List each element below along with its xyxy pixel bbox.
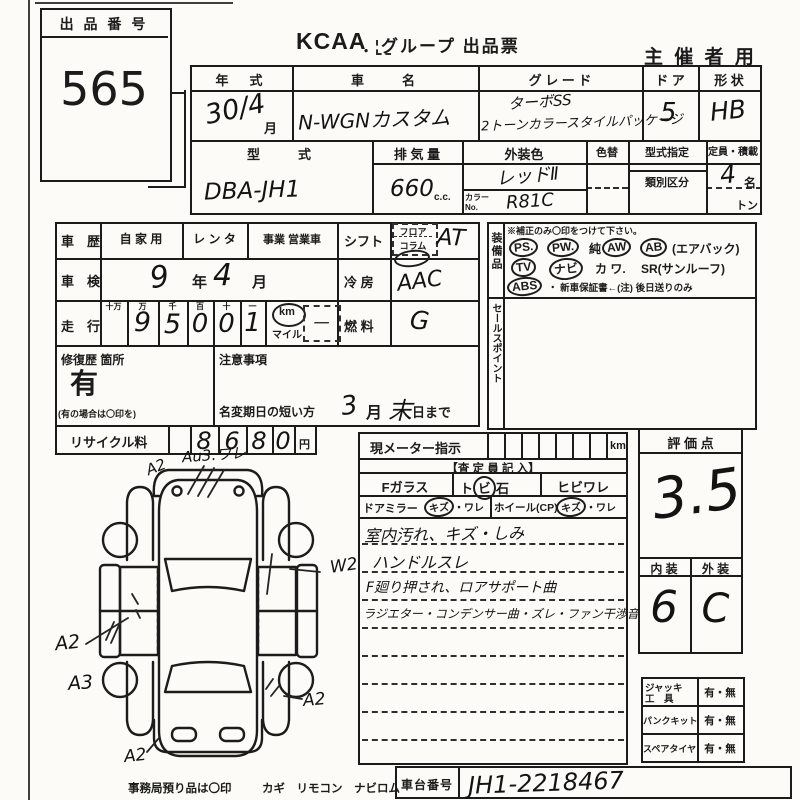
line xyxy=(521,434,523,458)
equipment-abs: ABS xyxy=(507,277,542,296)
headlight-left xyxy=(173,487,182,496)
circled-mark: PW. xyxy=(546,237,580,259)
ac-label: 冷 房 xyxy=(344,272,374,291)
color-no-value: R81C xyxy=(505,189,554,213)
color-no-label: カラーNo. xyxy=(465,193,495,212)
inspector-section-title: 【査 定 員 記 入】 xyxy=(358,460,628,476)
stone-chip-text: ト xyxy=(460,481,473,496)
rename-month-value: 3 xyxy=(339,390,360,422)
sales-point-label: セールスポイント xyxy=(488,303,503,425)
repair-note: (有の場合は〇印を) xyxy=(58,407,136,420)
chassis-number-value: JH1-2218467 xyxy=(468,766,625,799)
fender-front-right xyxy=(263,487,289,560)
damage-mark-front-top: Au3.ワレ xyxy=(181,442,246,467)
windshield xyxy=(165,559,251,591)
circled-mark: TV xyxy=(510,257,537,278)
equipment-ps: PS. xyxy=(509,238,538,257)
repair-value: 有 xyxy=(70,362,98,402)
scan-artifact xyxy=(170,92,186,94)
line xyxy=(452,472,454,495)
damage-mark-left-side: A2 xyxy=(54,631,81,656)
shape-value: HB xyxy=(709,94,748,127)
wheel-damage: キズ・ワレ xyxy=(556,497,616,517)
displacement-unit: c.c. xyxy=(434,192,451,203)
inspection-label: 車 検 xyxy=(61,271,100,290)
line xyxy=(641,761,745,763)
year-value: 30/4 xyxy=(202,88,268,131)
taillight-left xyxy=(172,728,196,741)
line xyxy=(190,140,762,142)
circled-mark: PS. xyxy=(508,237,539,258)
line xyxy=(641,677,745,679)
interior-label: 内 装 xyxy=(638,560,690,577)
line xyxy=(504,434,506,458)
line xyxy=(478,222,480,425)
line xyxy=(589,434,591,458)
fuel-value: G xyxy=(409,305,431,336)
dashed-line xyxy=(394,236,432,237)
wheel-crack-text: ・ワレ xyxy=(586,503,616,514)
lot-number-label: 出 品 番 号 xyxy=(40,14,168,34)
mile-unit: マイル xyxy=(272,326,302,341)
spare-tire-label: スペアタイヤ xyxy=(643,742,696,755)
circled-mark: ABS xyxy=(506,275,543,297)
rename-deadline-label: 名変期日の短い方 xyxy=(219,403,315,420)
jack-tools-label2: 工 具 xyxy=(645,691,674,705)
capacity-unit: 名 xyxy=(744,174,756,191)
line xyxy=(755,222,757,430)
line xyxy=(458,766,460,799)
load-unit: トン xyxy=(736,197,758,213)
mirror-damage: キズ・ワレ xyxy=(424,497,484,517)
mileage-label: 走 行 xyxy=(61,316,100,335)
type-designation-label: 型式指定 xyxy=(628,144,706,160)
shift-value: AT xyxy=(436,224,465,251)
exterior-color-label: 外装色 xyxy=(462,144,586,163)
puncture-kit-label: パンクキット xyxy=(643,714,697,727)
equipment-note: ※補正のみ〇印をつけて下さい。 xyxy=(507,224,642,237)
mirror-crack-text: ・ワレ xyxy=(454,503,484,514)
wheel-front-right xyxy=(279,523,313,557)
rear-window xyxy=(165,662,251,692)
inspection-year-unit: 年 xyxy=(192,271,207,292)
mileage-digit: 9 xyxy=(127,307,158,338)
color-change-label: 色替 xyxy=(586,144,628,160)
mileage-digit: 5 xyxy=(158,309,187,340)
line xyxy=(55,345,480,347)
career-private: 自 家 用 xyxy=(100,230,182,247)
car-name-label: 車 名 xyxy=(292,70,478,89)
line xyxy=(265,300,267,345)
meter-unit: km xyxy=(610,440,626,452)
line xyxy=(626,432,628,765)
meter-label: 現メーター指示 xyxy=(370,438,461,457)
line xyxy=(395,797,792,799)
auction-sheet: 出 品 番 号 565 KCAA ．グループ 出品票 主 催 者 用 年 式 車… xyxy=(0,0,800,800)
line xyxy=(372,163,762,165)
caution-label: 注意事項 xyxy=(219,351,267,368)
fender-rear-left xyxy=(127,662,153,735)
career-rental: レ ン タ xyxy=(182,230,247,247)
front-glass-label: Fガラス xyxy=(358,477,452,496)
rename-month-unit: 月 xyxy=(366,399,382,423)
inspector-note: F廻り押され、ロアサポート曲 xyxy=(366,577,556,597)
evaluation-score: 3.5 xyxy=(648,456,745,533)
equipment-aw: AW xyxy=(602,238,631,257)
equipment-pw: PW. xyxy=(547,238,579,257)
circled-mark: AW xyxy=(601,237,632,258)
displacement-value: 660 xyxy=(390,176,434,202)
equipment-label: 装備品 xyxy=(488,232,504,292)
mileage-digit: 0 xyxy=(187,309,213,339)
equipment-jun: 純 xyxy=(589,240,601,257)
equipment-navi: ナビ xyxy=(549,258,583,280)
dashed-line xyxy=(362,739,624,741)
line xyxy=(358,432,628,434)
grade-line1: ターボSS xyxy=(507,89,572,114)
line xyxy=(760,65,762,215)
line xyxy=(190,213,762,215)
line xyxy=(606,434,608,458)
circled-mark: キズ xyxy=(555,496,587,519)
year-label: 年 式 xyxy=(190,70,292,89)
scan-edge-line xyxy=(28,0,30,800)
damage-mark-right-side: W2 xyxy=(329,554,359,578)
equipment-ab: AB xyxy=(640,238,667,257)
damage-mark-left-lower: A3 xyxy=(67,671,94,695)
scan-artifact xyxy=(184,90,186,188)
dashed-line xyxy=(362,627,624,629)
line xyxy=(490,495,492,517)
line xyxy=(572,434,574,458)
inspection-month-unit: 月 xyxy=(252,271,267,292)
wheel-rear-left xyxy=(103,663,137,697)
line xyxy=(638,452,743,454)
mileage-digit: 1 xyxy=(240,308,265,338)
crack-label: ヒビワレ xyxy=(540,477,626,496)
dashed-line xyxy=(362,599,624,601)
shift-label: シフト xyxy=(344,231,383,250)
line xyxy=(487,434,489,458)
model-value: DBA-JH1 xyxy=(204,176,301,205)
sheet-brand: KCAA xyxy=(296,28,366,55)
inspector-note: ハンドルスレ xyxy=(372,549,468,573)
spare-tire-value: 有・無 xyxy=(697,741,743,756)
equipment-sunroof: SR(サンルーフ) xyxy=(641,260,725,277)
capacity-label: 定員・積載 xyxy=(706,143,760,158)
equipment-airbag: (エアバック) xyxy=(672,240,740,257)
shape-label: 形 状 xyxy=(698,70,760,89)
exterior-grade: C xyxy=(690,586,741,632)
line xyxy=(190,90,762,92)
inspector-note: 室内汚れ、キズ・しみ xyxy=(364,520,525,547)
inspection-month: 4 xyxy=(213,258,232,293)
dashed-line xyxy=(362,683,624,685)
exterior-color-value: レッドⅡ xyxy=(495,159,560,190)
line xyxy=(190,65,762,67)
scan-edge-line xyxy=(35,2,233,4)
line xyxy=(741,428,743,654)
door-mirror-label: ドアミラー xyxy=(363,500,418,516)
circled-mark: AB xyxy=(639,237,668,258)
stone-chip-text: 石 xyxy=(496,481,509,496)
fender-front-left xyxy=(127,487,153,560)
mileage-digit: 0 xyxy=(213,309,240,339)
jack-tools-value: 有・無 xyxy=(697,685,743,700)
line xyxy=(55,222,57,425)
km-unit: km xyxy=(272,306,302,318)
line xyxy=(358,517,628,519)
fender-rear-right xyxy=(263,662,289,735)
ac-value: AAC xyxy=(396,266,444,296)
puncture-kit-value: 有・無 xyxy=(697,713,743,728)
interior-grade: 6 xyxy=(638,582,690,633)
fuel-label: 燃 料 xyxy=(344,316,374,335)
line xyxy=(641,733,745,735)
dashed-line xyxy=(586,187,628,189)
equipment-tv: TV xyxy=(511,258,536,277)
displacement-label: 排 気 量 xyxy=(372,144,462,163)
career-commercial: 事業 営業車 xyxy=(247,231,337,247)
car-diagram xyxy=(52,442,364,784)
line xyxy=(213,345,215,425)
rear-bumper xyxy=(154,720,262,752)
equipment-warranty-note: ・ 新車保証書←(注) 後日送りのみ xyxy=(548,280,693,294)
line xyxy=(555,434,557,458)
line xyxy=(641,705,745,707)
evaluation-label: 評 価 点 xyxy=(638,433,743,452)
mile-mark: 一 xyxy=(303,310,337,334)
rename-day-unit: 日まで xyxy=(412,402,451,421)
model-label: 型 式 xyxy=(190,144,372,163)
digit-header-100k: 十万 xyxy=(100,301,127,312)
taillight-right xyxy=(220,728,244,741)
doors-value: 5 xyxy=(660,98,677,128)
circled-mark: キズ xyxy=(423,496,455,519)
car-body xyxy=(159,480,257,756)
line xyxy=(743,677,745,763)
chassis-number-label: 車台番号 xyxy=(401,776,453,793)
line xyxy=(538,434,540,458)
line xyxy=(40,36,168,38)
line xyxy=(790,766,792,799)
car-name-value: N-WGNカスタム xyxy=(298,101,451,135)
dashed-line xyxy=(362,655,624,657)
rename-day-value: 末 xyxy=(388,391,412,426)
inspection-year: 9 xyxy=(148,259,172,296)
circled-mark: ナビ xyxy=(548,257,584,282)
doors-label: ド ア xyxy=(642,70,698,89)
line xyxy=(638,428,743,430)
grade-label: グ レ ー ド xyxy=(478,70,642,89)
line xyxy=(358,763,628,765)
sheet-title: ．グループ 出品票 xyxy=(362,32,520,57)
capacity-value: 4 xyxy=(719,159,738,190)
damage-mark-rear-right: A2 xyxy=(302,689,326,711)
damage-mark-rear-bottom: A2 xyxy=(123,745,147,767)
lot-number-value: 565 xyxy=(40,62,168,116)
line xyxy=(628,170,706,172)
year-unit: 月 xyxy=(264,118,277,137)
wheel-label: ホイール(CP) xyxy=(494,500,558,515)
class-division-label: 類別区分 xyxy=(628,174,706,190)
wheel-front-left xyxy=(103,523,137,557)
dashed-line xyxy=(362,711,624,713)
exterior-label: 外 装 xyxy=(690,560,741,577)
scan-artifact xyxy=(148,186,186,188)
headlight-right xyxy=(235,487,244,496)
equipment-leather: カ ワ. xyxy=(595,260,626,277)
career-label: 車 歴 xyxy=(61,231,100,250)
inspector-note: ラジエター・コンデンサー曲・ズレ・ファン干渉音 xyxy=(363,605,639,622)
line xyxy=(487,297,757,299)
